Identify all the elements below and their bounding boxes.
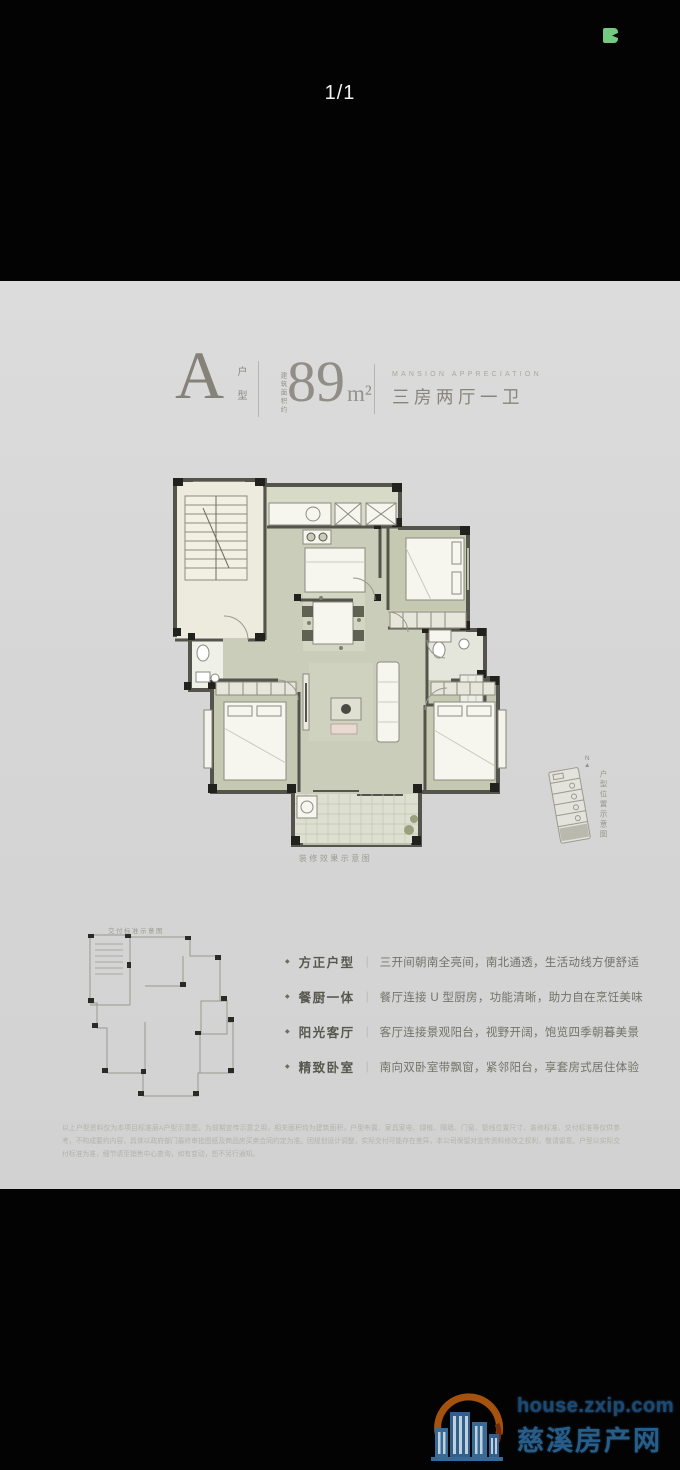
watermark-buildings-icon (429, 1390, 513, 1462)
feature-desc: 南向双卧室带飘窗，紧邻阳台，享套房式居住体验 (380, 1059, 640, 1075)
feature-label: 精致卧室 (299, 1057, 355, 1076)
feature-separator: ｜ (362, 1024, 373, 1040)
screen: 1/1 A 户型 建筑面积约 89 m² MANSION APPRECIATIO… (0, 0, 680, 1470)
feature-separator: ｜ (362, 1059, 373, 1075)
location-caption: 户型位置示意图 (598, 770, 609, 854)
header-divider (374, 364, 375, 414)
area-unit: m² (347, 381, 372, 407)
feature-separator: ｜ (362, 989, 373, 1005)
feature-item: ◆ 阳光客厅 ｜ 客厅连接景观阳台，视野开阔，饱览四季朝暮美景 (285, 1014, 625, 1049)
site-watermark: house.zxip.com 慈溪房产网 (429, 1390, 674, 1462)
feature-label: 餐厨一体 (299, 987, 355, 1006)
balcony-plant (410, 815, 418, 823)
bullet-icon: ◆ (285, 1063, 290, 1070)
balcony-plant (404, 825, 414, 835)
plan-caption: 装修效果示意图 (233, 853, 438, 864)
header-right: MANSION APPRECIATION 三房两厅一卫 (392, 371, 532, 409)
area-prefix-label: 建筑面积约 (277, 372, 287, 418)
layout-text: 三房两厅一卫 (392, 384, 532, 409)
feature-desc: 客厅连接景观阳台，视野开阔，饱览四季朝暮美景 (380, 1024, 640, 1040)
feature-label: 阳光客厅 (299, 1022, 355, 1041)
watermark-text: house.zxip.com 慈溪房产网 (517, 1395, 674, 1458)
north-arrow: N▲ (584, 755, 590, 769)
feature-desc: 餐厅连接 U 型厨房，功能清晰，助力自在烹饪美味 (380, 989, 643, 1005)
header-divider (258, 361, 259, 417)
watermark-url: house.zxip.com (517, 1395, 674, 1418)
delivery-key-plan (85, 934, 240, 1102)
feature-separator: ｜ (362, 954, 373, 970)
area-number: 89 (287, 352, 345, 413)
unit-type-label: 户型 (233, 366, 248, 418)
floorplan-drawing (163, 478, 508, 850)
washing-machine (297, 796, 317, 818)
image-pager: 1/1 (0, 82, 680, 105)
bullet-icon: ◆ (285, 993, 290, 1000)
location-key-plan (546, 764, 598, 852)
disclaimer-text: 以上户型资料仅为本项目标准层A户型示意图，为前期宣传示意之用，相关面积均为建筑面… (62, 1122, 620, 1161)
unit-letter: A (175, 341, 224, 409)
bedroom-left-furniture (216, 680, 298, 780)
watermark-site-name: 慈溪房产网 (517, 1419, 674, 1458)
feature-desc: 三开间朝南全亮间，南北通透，生活动线方便舒适 (380, 954, 640, 970)
feature-label: 方正户型 (299, 952, 355, 971)
feature-item: ◆ 餐厨一体 ｜ 餐厅连接 U 型厨房，功能清晰，助力自在烹饪美味 (285, 979, 625, 1014)
feature-item: ◆ 方正户型 ｜ 三开间朝南全亮间，南北通透，生活动线方便舒适 (285, 944, 625, 979)
en-subtitle: MANSION APPRECIATION (392, 371, 532, 378)
mini-program-icon[interactable] (602, 27, 620, 44)
area-value: 89 m² (287, 352, 372, 413)
feature-list: ◆ 方正户型 ｜ 三开间朝南全亮间，南北通透，生活动线方便舒适 ◆ 餐厨一体 ｜… (285, 944, 625, 1084)
bullet-icon: ◆ (285, 1028, 290, 1035)
feature-item: ◆ 精致卧室 ｜ 南向双卧室带飘窗，紧邻阳台，享套房式居住体验 (285, 1049, 625, 1084)
bullet-icon: ◆ (285, 958, 290, 965)
